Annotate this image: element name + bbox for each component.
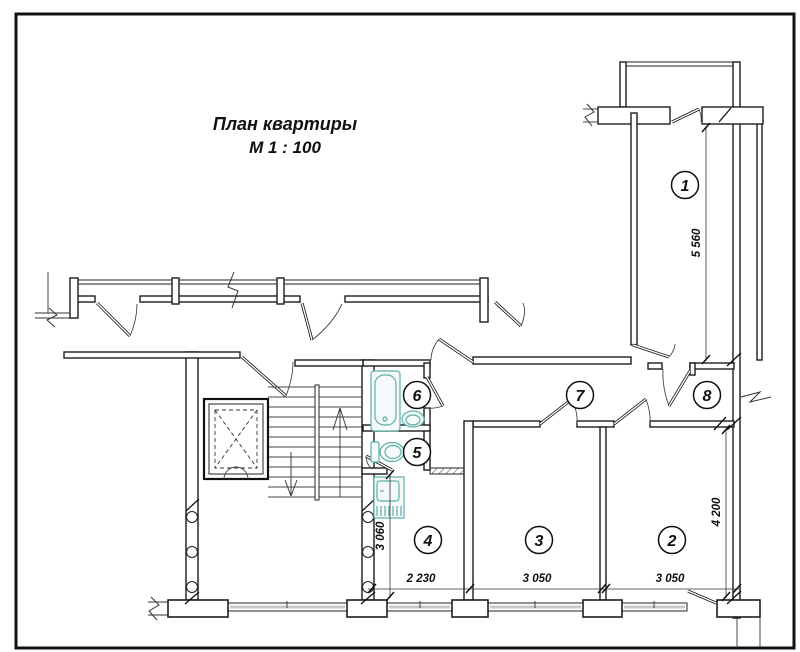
corridor-north-wall: [473, 357, 631, 364]
east-wall: [733, 62, 740, 618]
wall-pier: [717, 600, 760, 617]
room-number: 1: [681, 178, 690, 195]
dim-label: 4 200: [711, 497, 723, 527]
room-number: 2: [667, 533, 677, 550]
room-label-7: 7: [567, 382, 594, 409]
stair-west-wall: [186, 352, 198, 600]
balcony-rail: [620, 62, 737, 66]
wall-pier: [347, 600, 387, 617]
washbasin: [402, 411, 424, 427]
title-line2: М 1 : 100: [249, 138, 321, 157]
dim-label: 3 050: [656, 573, 685, 585]
room-label-2: 2: [659, 527, 686, 554]
dim-label: 2 230: [406, 573, 436, 585]
vent-duct-wall: [430, 468, 464, 474]
wall-pier: [168, 600, 228, 617]
title-line1: План квартиры: [213, 114, 358, 134]
toilet: [371, 442, 404, 462]
room-number: 3: [535, 533, 544, 550]
room-label-1: 1: [672, 172, 699, 199]
room2-room3-wall: [600, 427, 606, 600]
room-number: 8: [703, 388, 712, 405]
room-label-6: 6: [404, 382, 431, 409]
room-number: 7: [576, 388, 586, 405]
room1-west-wall: [631, 113, 637, 345]
floor-plan: План квартиры М 1 : 100: [0, 0, 800, 652]
dim-label: 3 060: [375, 521, 387, 550]
room3-room4-wall: [464, 421, 473, 600]
room-label-3: 3: [526, 527, 553, 554]
dim-label: 5 560: [691, 228, 703, 257]
wall-pier: [452, 600, 488, 617]
dim-label: 3 050: [523, 573, 552, 585]
east-outer-wall: [757, 113, 762, 360]
room-label-4: 4: [415, 527, 442, 554]
kitchen-sink: [374, 477, 404, 518]
room-number: 5: [413, 445, 423, 462]
drawing-page: План квартиры М 1 : 100: [0, 0, 800, 652]
room-label-5: 5: [404, 439, 431, 466]
room-label-8: 8: [694, 382, 721, 409]
bathtub: [371, 371, 400, 431]
elevator-shaft: [204, 399, 268, 479]
room-number: 4: [423, 533, 433, 550]
room-number: 6: [413, 388, 422, 405]
wall-pier: [583, 600, 622, 617]
